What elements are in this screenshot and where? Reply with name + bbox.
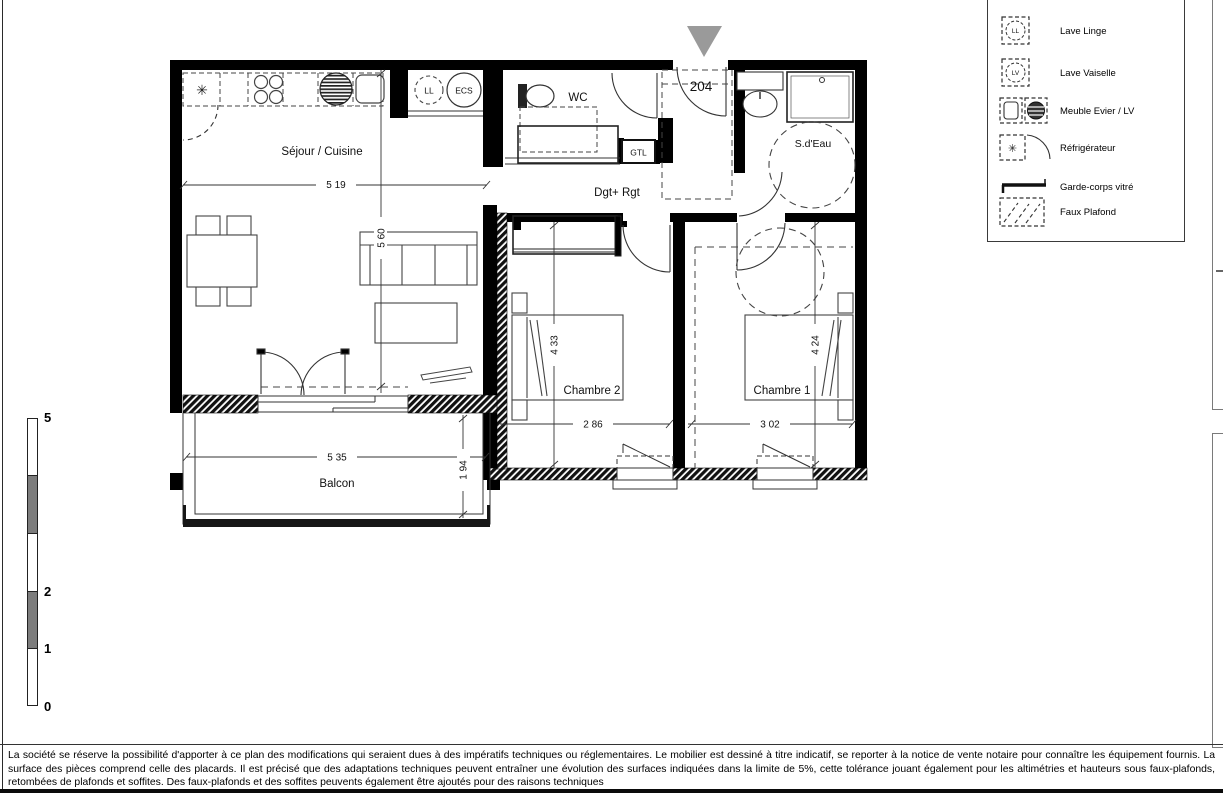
scale-bar: 5 2 1 0 [24, 410, 84, 720]
dining-table-set [187, 216, 257, 306]
sink-bowl-hatched [320, 73, 352, 105]
gtl-label: GTL [630, 148, 647, 158]
svg-text:✳: ✳ [1008, 143, 1017, 155]
scale-bar-segments [27, 418, 38, 706]
dim-chambre1-height: 4 24 [811, 335, 822, 355]
dim-sejour-width: 5 19 [326, 180, 346, 191]
dim-balcon-depth: 1 94 [459, 460, 470, 480]
scale-label-0: 0 [44, 699, 51, 714]
scale-label-5: 5 [44, 410, 51, 425]
sink-unit [356, 75, 384, 103]
washing-machine-label: LL [424, 86, 434, 96]
closet-front-lines [408, 111, 620, 164]
dim-balcon-width: 5 35 [327, 453, 347, 464]
room-label-degagement: Dgt+ Rgt [594, 187, 641, 199]
legend-label: Meuble Evier / LV [1060, 106, 1134, 117]
svg-text:LV: LV [1012, 70, 1020, 77]
right-edge-box-bottom [1212, 433, 1223, 748]
tv-console [421, 367, 472, 383]
room-label-chambre2: Chambre 2 [564, 385, 621, 397]
legend-item-meuble-evier: Meuble Evier / LV [998, 94, 1054, 128]
room-label-sdeau: S.d'Eau [795, 138, 832, 150]
accessibility-circle-chambre1 [736, 228, 824, 316]
vanity-counter [737, 72, 783, 90]
wc-cabinet [518, 126, 618, 163]
room-label-balcon: Balcon [319, 478, 354, 490]
page-bottom-bar [0, 789, 1223, 793]
page-left-border [2, 0, 3, 793]
legend-item-refrigerateur: ✳ Réfrigérateur [998, 131, 1054, 165]
balustrade-right-return [487, 505, 490, 519]
legend-label: Faux Plafond [1060, 207, 1116, 218]
balcony-outline [183, 413, 490, 524]
meuble-evier-icon [998, 94, 1054, 128]
legend-box: LL Lave Linge LV Lave Vaiselle Meuble [987, 0, 1185, 242]
room-label-chambre1: Chambre 1 [754, 385, 811, 397]
hob-burners [255, 76, 283, 104]
legend-label: Lave Vaiselle [1060, 68, 1116, 79]
right-edge-box-top [1212, 0, 1223, 410]
legend-label: Réfrigérateur [1060, 143, 1115, 154]
legend-item-lave-vaisselle: LV Lave Vaiselle [998, 56, 1038, 90]
dim-chambre1-width: 3 02 [760, 420, 780, 431]
dim-sejour-height: 5 60 [377, 228, 388, 248]
legend-item-lave-linge: LL Lave Linge [998, 14, 1038, 48]
legend-label: Garde-corps vitré [1060, 182, 1133, 193]
chambre2-bed [512, 293, 623, 420]
svg-text:LL: LL [1012, 28, 1020, 35]
chambre1-window [753, 444, 817, 489]
refrigerator-icon: ✳ [196, 82, 208, 98]
room-label-wc: WC [568, 92, 587, 104]
entry-triangle-marker [687, 26, 722, 57]
legend-item-faux-plafond: Faux Plafond [998, 195, 1054, 229]
right-edge-tick [1216, 270, 1223, 272]
water-heater-label: ECS [455, 86, 473, 96]
dim-chambre2-height: 4 33 [550, 335, 561, 355]
sliding-bay-window [258, 396, 408, 412]
refrigerateur-icon: ✳ [998, 131, 1054, 165]
lave-vaisselle-icon: LV [998, 56, 1038, 90]
dim-chambre2-width: 2 86 [583, 420, 603, 431]
scale-label-2: 2 [44, 584, 51, 599]
disclaimer-text: La société se réserve la possibilité d'a… [0, 744, 1223, 790]
legend-label: Lave Linge [1060, 26, 1106, 37]
chambre2-window [613, 444, 677, 489]
toilet-bowl [526, 85, 554, 107]
coffee-table [375, 303, 457, 343]
wc-placard-dashed [520, 107, 597, 152]
unit-number: 204 [690, 79, 713, 94]
faux-plafond-icon [998, 195, 1054, 229]
accessibility-circle-sdeau [769, 122, 855, 208]
glass-balustrade [183, 519, 490, 527]
scale-label-1: 1 [44, 641, 51, 656]
kitchen-counter [183, 73, 383, 106]
floor-plan-page: ✳ LL ECS GTL 204 [0, 0, 1223, 800]
room-label-sejour: Séjour / Cuisine [281, 146, 362, 158]
balustrade-left-return [183, 505, 186, 519]
lave-linge-icon: LL [998, 14, 1038, 48]
